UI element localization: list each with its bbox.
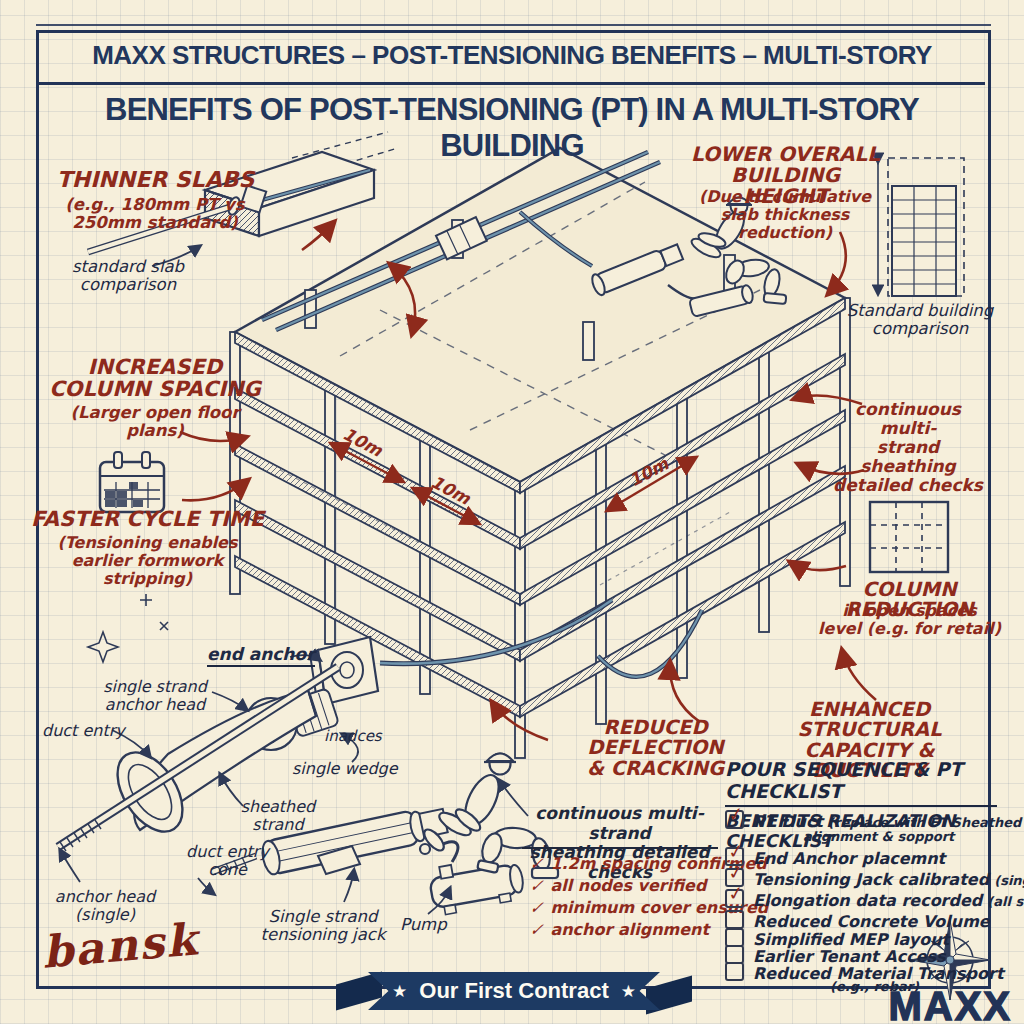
callout-column-reduction-detail: in open spaces level (e.g. for retail) [812, 602, 1007, 638]
label-pump: Pump [400, 916, 447, 934]
checklist-item: ✓Tensioning Jack calibrated (single stra… [725, 868, 1024, 889]
note-standard-building-comparison: Standard building comparison [845, 302, 995, 339]
checklist-panel: POUR SEQUENCE & PT CHECKLIST BENEFITS RE… [725, 758, 997, 986]
label-sheathed-strand: sheathed strand [228, 798, 328, 834]
checkbox-icon: ✓ [725, 962, 744, 981]
callout-lower-building-height-detail: (Due to cumulative slab thickness reduct… [680, 188, 890, 242]
top-banner-title: MAXX STRUCTURES – POST-TENSIONING BENEFI… [44, 40, 980, 71]
contract-ribbon: ★ Our First Contract ★ [368, 972, 660, 1010]
header-divider [39, 82, 985, 85]
check-mark-icon: ✓ [528, 897, 544, 917]
callout-thinner-slabs-detail: (e.g., 180mm PT vs 250mm standard) [40, 196, 270, 233]
check-mark-icon: ✓ [528, 875, 544, 895]
note-standard-slab-comparison: standard slab comparison [48, 258, 208, 295]
maxx-logo: MAXX [820, 984, 1012, 1024]
field-checks-underline [522, 847, 718, 849]
checkbox-icon: ✓ [725, 810, 744, 829]
star-icon: ★ [392, 981, 407, 1001]
label-wedges: inadces [324, 728, 382, 745]
callout-increased-column-spacing: INCREASED COLUMN SPACING [40, 356, 270, 400]
outer-top-line [36, 24, 991, 26]
label-single-wedge: single wedge [292, 760, 398, 778]
checklist-item: ✓Elongation data recorded (all strands) [725, 889, 1024, 910]
field-check-item: ✓anchor alignment [530, 920, 709, 939]
label-single-strand-anchor-head: single strand anchor head [95, 678, 215, 714]
checklist-item-extra: alignment & sopport [803, 829, 954, 844]
label-tensioning-jack: Single strand tensioning jack [248, 908, 398, 945]
checkbox-icon: ✓ [725, 910, 744, 929]
star-icon: ★ [621, 981, 636, 1001]
checklist-item: ✓PT Duct (replace with FT Sheathed Stran… [725, 810, 1024, 831]
field-check-item: ✓all nodes verified [530, 876, 706, 895]
check-mark-icon: ✓ [528, 919, 544, 939]
checkbox-icon: ✓ [725, 889, 744, 908]
callout-thinner-slabs: THINNER SLABS [48, 168, 263, 191]
checklist-heading: POUR SEQUENCE & PT CHECKLIST [725, 758, 997, 807]
label-duct-entry: duct entry [42, 722, 125, 740]
label-end-anchor: end anchor [207, 645, 315, 667]
label-duct-entry-cone: duct entry cone [175, 843, 280, 879]
ribbon-label: Our First Contract [419, 978, 608, 1004]
checklist-item: ✓End Anchor placemnt [725, 847, 945, 868]
check-mark-icon: ✓ [528, 853, 544, 873]
callout-increased-column-spacing-detail: (Larger open floor plans) [40, 404, 270, 441]
callout-sheathing-checks: continuous multi- strand sheathing detai… [828, 400, 988, 495]
callout-faster-cycle-time-detail: (Tensioning enables earlier formwork str… [30, 534, 265, 588]
callout-faster-cycle-time: FASTER CYCLE TIME [30, 508, 265, 530]
